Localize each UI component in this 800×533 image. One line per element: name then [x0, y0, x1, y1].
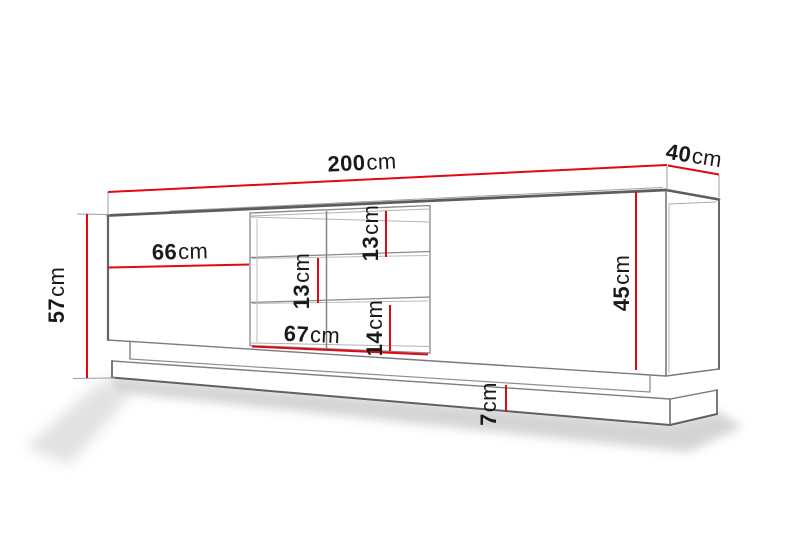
dimension-unit: cm	[476, 382, 501, 412]
dimension-unit: cm	[310, 322, 341, 348]
dimension-value: 40	[664, 139, 693, 168]
dimension-label-niche-top: 13cm	[360, 205, 382, 261]
dimension-value: 66	[152, 239, 178, 265]
dimension-label-plinth-height: 7cm	[478, 382, 500, 426]
dimension-label-left-door: 66cm	[152, 240, 209, 263]
dimension-label-niche-middle: 13cm	[291, 253, 313, 309]
dimension-value: 7	[476, 413, 501, 426]
dimension-unit: cm	[609, 255, 634, 285]
dimension-label-total-width: 200cm	[327, 150, 397, 175]
dimension-label-niche-width: 67cm	[283, 323, 340, 347]
dimension-value: 13	[289, 284, 314, 309]
dimension-label-total-height: 57cm	[46, 267, 68, 323]
dimension-unit: cm	[366, 148, 397, 174]
dimension-value: 13	[358, 236, 383, 261]
cabinet-side-face	[666, 191, 719, 377]
dimension-unit: cm	[358, 205, 383, 235]
dimension-label-niche-bottom: 14cm	[364, 300, 386, 356]
dimension-value: 200	[327, 150, 366, 177]
dimension-value: 57	[44, 298, 69, 323]
dimension-diagram: 200cm 40cm 57cm 66cm 13cm 13cm 14cm 67cm…	[0, 0, 800, 533]
dimension-unit: cm	[178, 238, 209, 264]
dimension-unit: cm	[289, 253, 314, 283]
dimension-unit: cm	[44, 267, 69, 297]
cabinet-drawing	[0, 0, 800, 533]
dimension-unit: cm	[690, 143, 724, 172]
dimension-value: 67	[283, 321, 309, 347]
dimension-unit: cm	[362, 300, 387, 330]
dimension-value: 14	[362, 331, 387, 356]
dimension-label-body-height: 45cm	[611, 255, 633, 311]
dimension-value: 45	[609, 286, 634, 311]
